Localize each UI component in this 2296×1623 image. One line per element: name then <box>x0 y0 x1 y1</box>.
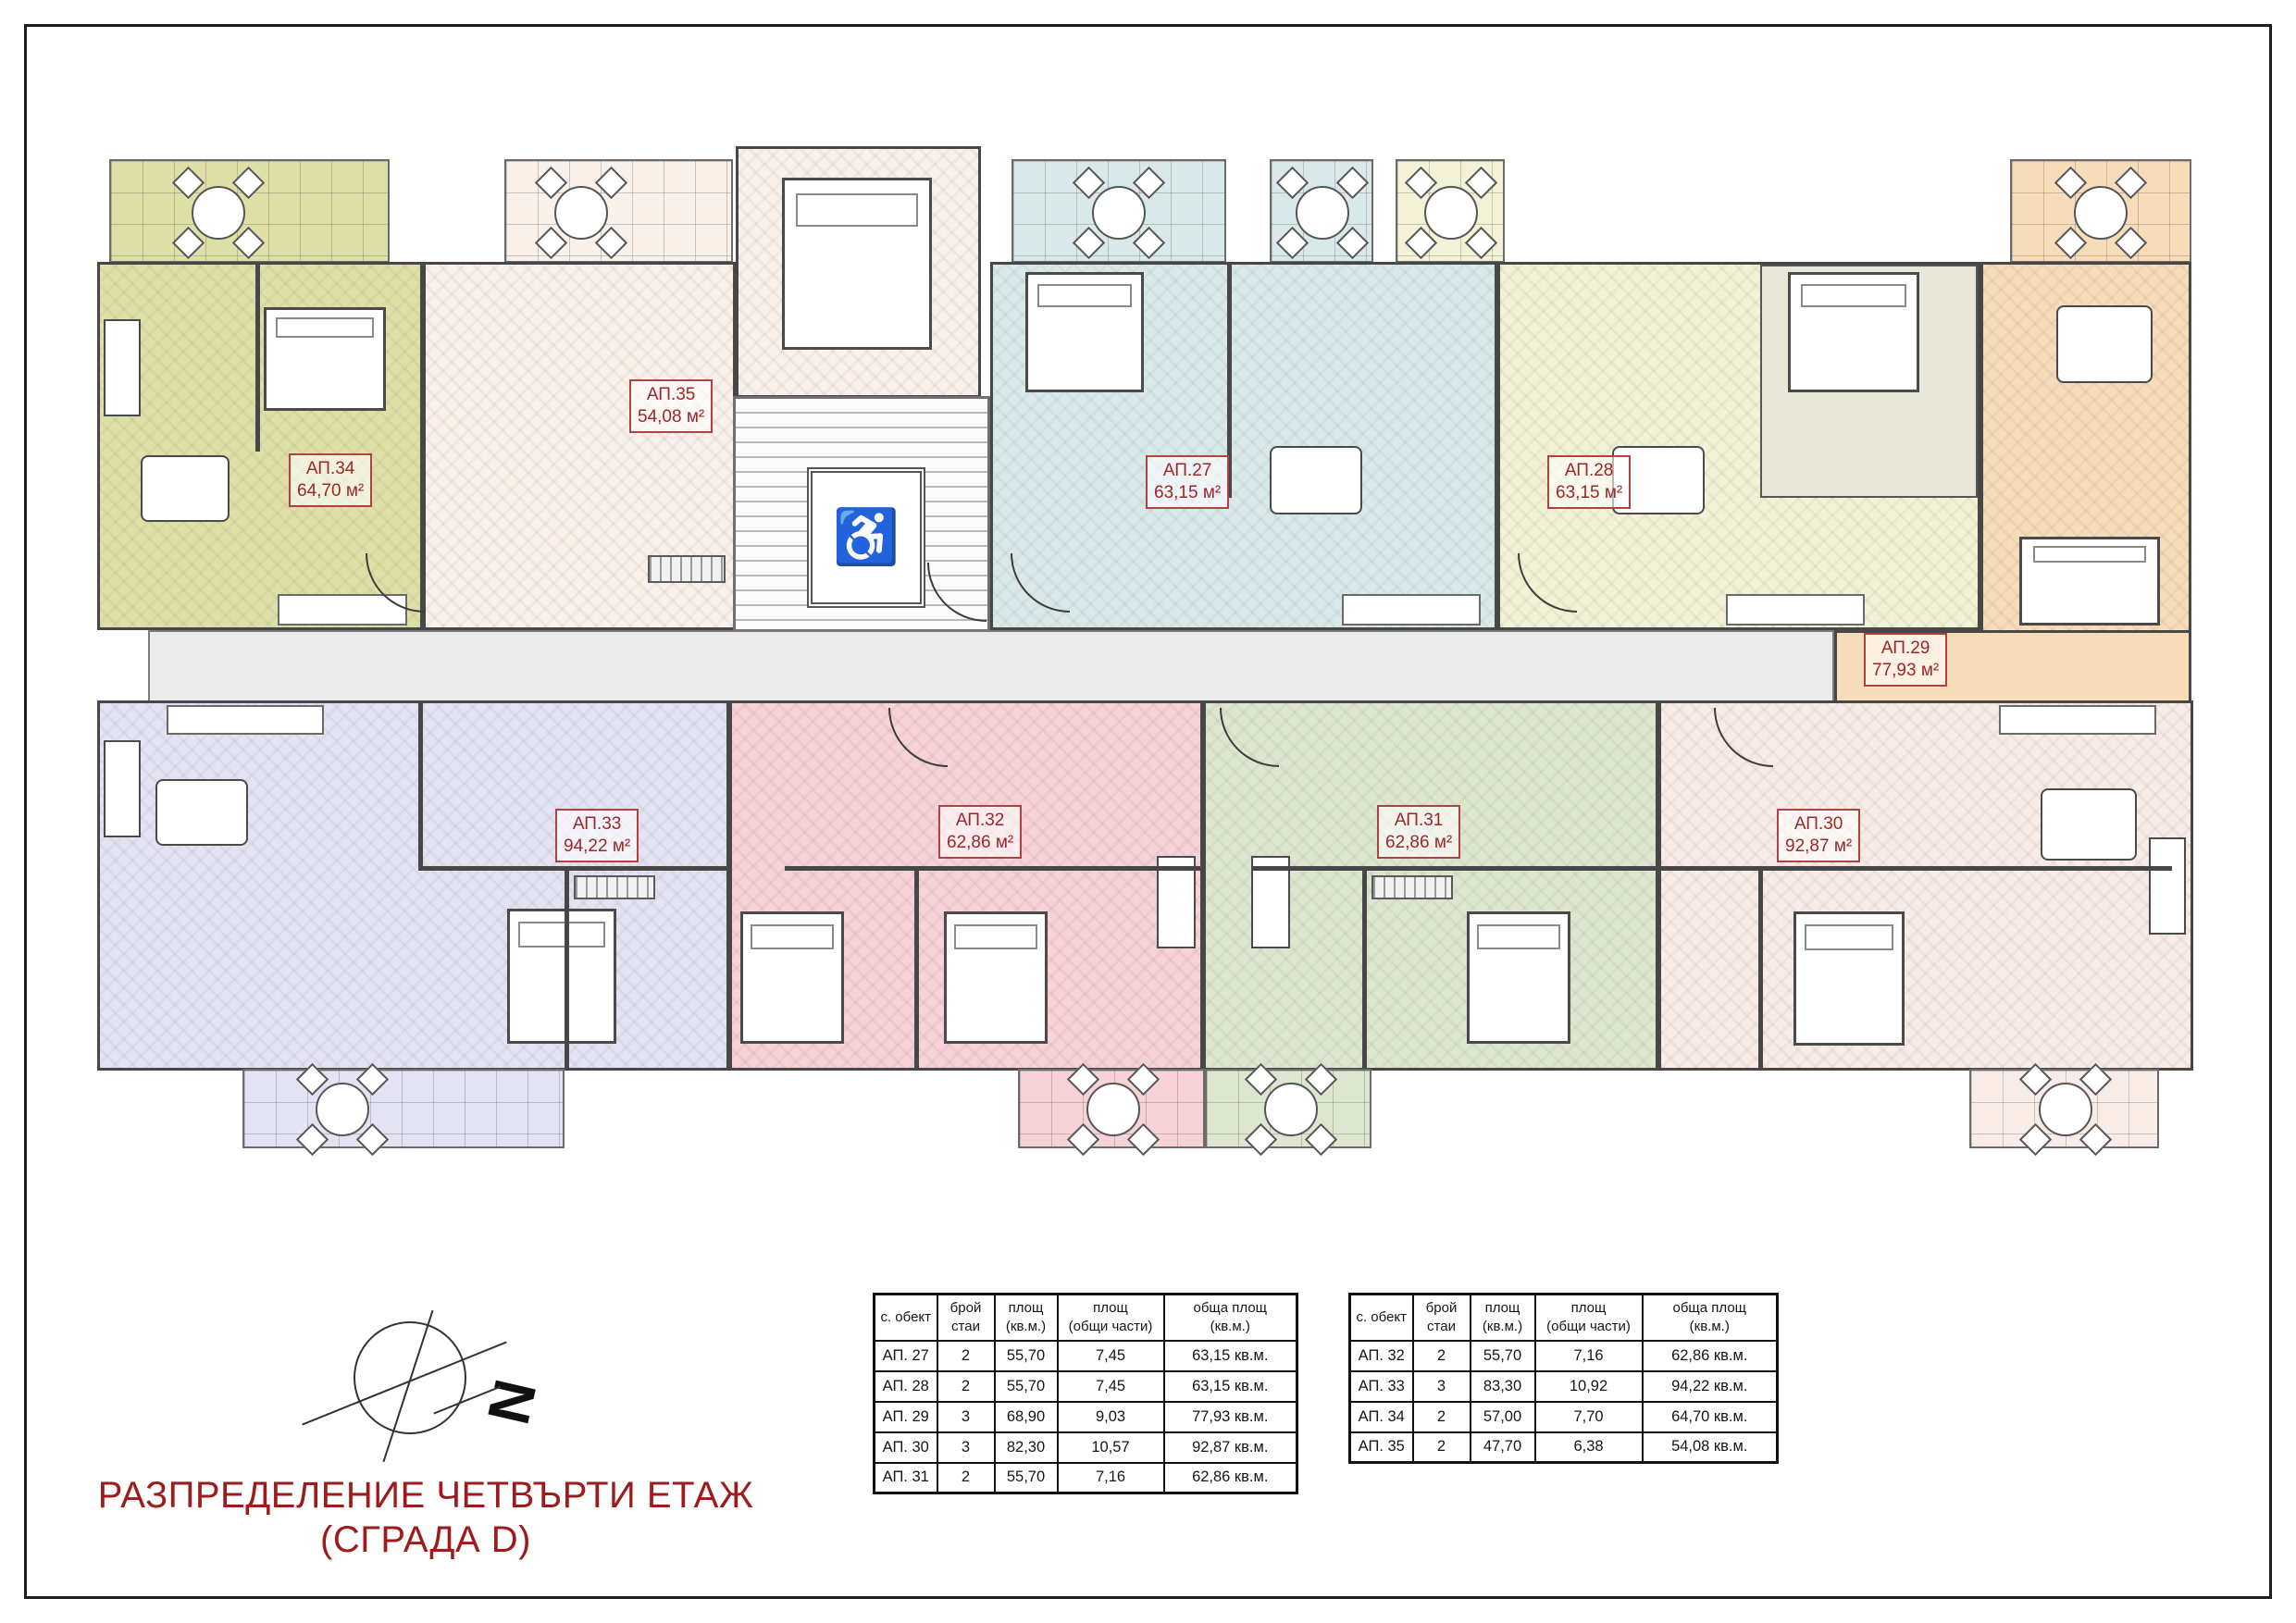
table-row: АП. 35 2 47,70 6,38 54,08 кв.м. <box>1350 1432 1778 1463</box>
wardrobe-icon <box>574 875 655 899</box>
cell: 2 <box>1413 1432 1471 1463</box>
apartment-label-ap32: АП.32 62,86 м² <box>938 805 1022 859</box>
apartment-label-ap33: АП.33 94,22 м² <box>555 809 639 862</box>
bed-icon <box>1793 911 1905 1046</box>
interior-wall <box>1251 866 2172 871</box>
cell: 2 <box>1413 1402 1471 1432</box>
cell: 68,90 <box>995 1402 1058 1432</box>
table-row: АП. 28 2 55,70 7,45 63,15 кв.м. <box>875 1371 1297 1402</box>
balcony-table-icon <box>2058 170 2143 255</box>
balcony-ap31 <box>1205 1069 1371 1148</box>
table-row: АП. 33 3 83,30 10,92 94,22 кв.м. <box>1350 1371 1778 1402</box>
apartment-label-ap28: АП.28 63,15 м² <box>1547 455 1631 509</box>
spec-table-2: с. обект брой стаи площ (кв.м.) площ (об… <box>1348 1293 1779 1464</box>
sheet-title-line2: (СГРАДА D) <box>51 1518 800 1562</box>
cell: АП. 35 <box>1350 1432 1413 1463</box>
cell: 3 <box>1413 1371 1471 1402</box>
cell: 7,16 <box>1535 1341 1643 1371</box>
corridor <box>148 630 1834 702</box>
cell: АП. 28 <box>875 1371 937 1402</box>
apartment-label-ap31: АП.31 62,86 м² <box>1377 805 1460 859</box>
table-header-row: с. обект брой стаи площ (кв.м.) площ (об… <box>875 1295 1297 1341</box>
balcony-table-icon <box>176 170 261 255</box>
col-header: с. обект <box>1350 1295 1413 1341</box>
interior-wall <box>914 871 919 1069</box>
sofa-icon <box>104 740 141 837</box>
bed-icon <box>264 307 386 411</box>
balcony-table-icon <box>1071 1067 1156 1152</box>
apartment-label-ap30: АП.30 92,87 м² <box>1777 809 1860 862</box>
interior-wall <box>1758 871 1763 1069</box>
balcony-ap28 <box>1396 159 1505 263</box>
interior-wall <box>785 866 1201 871</box>
apartment-area: 64,70 м² <box>297 480 364 502</box>
cell: 2 <box>937 1463 995 1493</box>
cell: 55,70 <box>995 1341 1058 1371</box>
cell: 3 <box>937 1432 995 1463</box>
col-header: площ (кв.м.) <box>995 1295 1058 1341</box>
balcony-table-icon <box>300 1067 385 1152</box>
cell: АП. 30 <box>875 1432 937 1463</box>
apartment-id: АП.32 <box>947 810 1013 832</box>
bed-icon <box>782 178 932 350</box>
kitchen-counter-icon <box>1342 594 1481 626</box>
interior-wall <box>421 866 731 871</box>
cell: 94,22 кв.м. <box>1643 1371 1778 1402</box>
cell: 77,93 кв.м. <box>1164 1402 1297 1432</box>
table-row: АП. 34 2 57,00 7,70 64,70 кв.м. <box>1350 1402 1778 1432</box>
cell: 47,70 <box>1471 1432 1535 1463</box>
col-header: площ (кв.м.) <box>1471 1295 1535 1341</box>
apartment-area: 77,93 м² <box>1872 660 1939 682</box>
cell: 9,03 <box>1058 1402 1164 1432</box>
balcony-ap34 <box>109 159 390 263</box>
col-header: брой стаи <box>937 1295 995 1341</box>
apartment-area: 63,15 м² <box>1154 482 1221 504</box>
col-header: с. обект <box>875 1295 937 1341</box>
balcony-table-icon <box>2023 1067 2108 1152</box>
apartment-area: 94,22 м² <box>564 836 630 858</box>
col-header: площ (общи части) <box>1058 1295 1164 1341</box>
table-row: АП. 30 3 82,30 10,57 92,87 кв.м. <box>875 1432 1297 1463</box>
col-header: обща площ (кв.м.) <box>1164 1295 1297 1341</box>
balcony-ap32 <box>1018 1069 1205 1148</box>
apartment-id: АП.33 <box>564 813 630 836</box>
spec-table-1: с. обект брой стаи площ (кв.м.) площ (об… <box>873 1293 1298 1494</box>
cell: АП. 31 <box>875 1463 937 1493</box>
cell: 3 <box>937 1402 995 1432</box>
apartment-id: АП.27 <box>1154 460 1221 482</box>
balcony-table-icon <box>539 170 624 255</box>
balcony-table-icon <box>1280 170 1365 255</box>
cell: 55,70 <box>995 1371 1058 1402</box>
apartment-id: АП.34 <box>297 458 364 480</box>
apartment-id: АП.29 <box>1872 638 1939 660</box>
apartment-id: АП.30 <box>1785 813 1852 836</box>
cell: 6,38 <box>1535 1432 1643 1463</box>
table-row: АП. 27 2 55,70 7,45 63,15 кв.м. <box>875 1341 1297 1371</box>
sofa-icon <box>104 319 141 416</box>
wardrobe-icon <box>648 555 726 583</box>
dining-table-icon <box>155 779 248 846</box>
kitchen-counter-icon <box>1999 705 2156 735</box>
bed-icon <box>944 911 1048 1044</box>
sheet-title-line1: РАЗПРЕДЕЛЕНИЕ ЧЕТВЪРТИ ЕТАЖ <box>51 1473 800 1518</box>
dining-table-icon <box>2056 305 2153 383</box>
apartment-id: АП.35 <box>638 384 704 406</box>
apartment-area: 92,87 м² <box>1785 836 1852 858</box>
balcony-table-icon <box>1076 170 1161 255</box>
bed-icon <box>740 911 844 1044</box>
balcony-table-icon <box>1409 170 1494 255</box>
apartment-area: 62,86 м² <box>947 832 1013 854</box>
table-header-row: с. обект брой стаи площ (кв.м.) площ (об… <box>1350 1295 1778 1341</box>
cell: 82,30 <box>995 1432 1058 1463</box>
apartment-label-ap34: АП.34 64,70 м² <box>289 453 372 507</box>
dining-table-icon <box>1270 446 1362 514</box>
wardrobe-icon <box>1371 875 1453 899</box>
cell: АП. 33 <box>1350 1371 1413 1402</box>
balcony-ap35 <box>504 159 733 263</box>
sofa-icon <box>2149 837 2186 935</box>
cell: 7,70 <box>1535 1402 1643 1432</box>
cell: 57,00 <box>1471 1402 1535 1432</box>
bed-icon <box>1025 272 1144 392</box>
floor-plan-sheet: ♿ <box>0 0 2296 1623</box>
table-row: АП. 31 2 55,70 7,16 62,86 кв.м. <box>875 1463 1297 1493</box>
apartment-id: АП.31 <box>1385 810 1452 832</box>
apartment-area: 54,08 м² <box>638 406 704 428</box>
cell: 92,87 кв.м. <box>1164 1432 1297 1463</box>
cell: АП. 34 <box>1350 1402 1413 1432</box>
elevator: ♿ <box>807 467 925 608</box>
bed-icon <box>1467 911 1570 1044</box>
cell: АП. 27 <box>875 1341 937 1371</box>
apartment-area: 63,15 м² <box>1556 482 1622 504</box>
sheet-title: РАЗПРЕДЕЛЕНИЕ ЧЕТВЪРТИ ЕТАЖ (СГРАДА D) <box>51 1473 800 1562</box>
col-header: площ (общи части) <box>1535 1295 1643 1341</box>
cell: 2 <box>1413 1341 1471 1371</box>
cell: 63,15 кв.м. <box>1164 1371 1297 1402</box>
cell: 62,86 кв.м. <box>1643 1341 1778 1371</box>
apartment-area: 62,86 м² <box>1385 832 1452 854</box>
cell: 64,70 кв.м. <box>1643 1402 1778 1432</box>
wheelchair-accessible-icon: ♿ <box>833 506 900 569</box>
balcony-ap33 <box>242 1069 565 1148</box>
cell: АП. 29 <box>875 1402 937 1432</box>
cell: 7,45 <box>1058 1371 1164 1402</box>
interior-wall <box>1362 871 1367 1069</box>
interior-wall <box>255 262 260 452</box>
cell: 83,30 <box>1471 1371 1535 1402</box>
cell: 63,15 кв.м. <box>1164 1341 1297 1371</box>
apartment-id: АП.28 <box>1556 460 1622 482</box>
interior-wall <box>565 871 569 1069</box>
cell: 7,16 <box>1058 1463 1164 1493</box>
apartment-label-ap35: АП.35 54,08 м² <box>629 379 713 433</box>
apartment-label-ap27: АП.27 63,15 м² <box>1146 455 1229 509</box>
interior-wall <box>418 700 423 871</box>
balcony-table-icon <box>1248 1067 1334 1152</box>
kitchen-counter-icon <box>1726 594 1865 626</box>
bed-icon <box>1788 272 1919 392</box>
apartment-label-ap29: АП.29 77,93 м² <box>1864 633 1947 687</box>
table-row: АП. 32 2 55,70 7,16 62,86 кв.м. <box>1350 1341 1778 1371</box>
cell: АП. 32 <box>1350 1341 1413 1371</box>
col-header: обща площ (кв.м.) <box>1643 1295 1778 1341</box>
bed-icon <box>2019 537 2160 626</box>
cell: 10,92 <box>1535 1371 1643 1402</box>
dining-table-icon <box>141 455 230 522</box>
balcony-ap30 <box>1969 1069 2159 1148</box>
cell: 2 <box>937 1341 995 1371</box>
balcony-ap29 <box>2010 159 2191 263</box>
table-row: АП. 29 3 68,90 9,03 77,93 кв.м. <box>875 1402 1297 1432</box>
col-header: брой стаи <box>1413 1295 1471 1341</box>
cell: 54,08 кв.м. <box>1643 1432 1778 1463</box>
kitchen-counter-icon <box>167 705 324 735</box>
cell: 10,57 <box>1058 1432 1164 1463</box>
balcony-ap27-second <box>1270 159 1373 263</box>
cell: 55,70 <box>1471 1341 1535 1371</box>
balcony-ap27 <box>1011 159 1226 263</box>
cell: 55,70 <box>995 1463 1058 1493</box>
bed-icon <box>507 909 616 1044</box>
cell: 2 <box>937 1371 995 1402</box>
cell: 7,45 <box>1058 1341 1164 1371</box>
cell: 62,86 кв.м. <box>1164 1463 1297 1493</box>
dining-table-icon <box>2041 788 2137 861</box>
